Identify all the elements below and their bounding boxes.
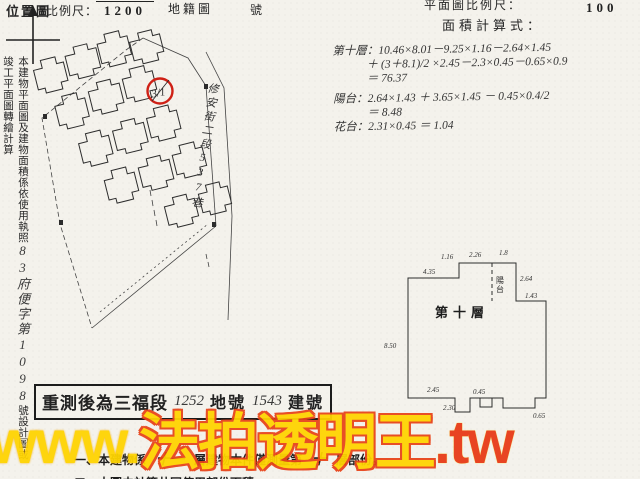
watermark-tld: .tw [434,408,513,476]
margin-note-permit-number: 83府便字第1098 [15,243,30,405]
scanned-building-survey-document: 位置圖 比例尺： 1200 地籍圖 號 平面圖比例尺： 100 面積計算式： 本… [0,0,640,479]
dimension-label: 4.35 [423,268,436,276]
lot-mark-text: 3/1 [149,86,166,100]
sheet-number-suffix: 號 [250,1,262,18]
scale-label: 比例尺： [46,2,98,19]
road-edge-diagonal [92,226,216,328]
plan-scale-label: 平面圖比例尺： [424,0,522,13]
parcel-boundary-left [42,38,143,328]
location-map-title: 位置圖 [6,1,51,20]
dimension-label: 1.8 [499,249,508,257]
road-centerline [100,224,208,312]
watermark-site-name: 法拍透明王 [139,408,434,476]
area-calculation-block: 第十層：10.46×8.01－9.25×1.16－2.64×1.45＋ (3＋8… [332,39,634,134]
dimension-label: 2.26 [469,251,482,259]
area-formula-label: 面積計算式： [442,15,544,34]
room-label: 第十層 [435,305,489,320]
scale-denominator: 1200 [96,1,154,19]
plan-scale-fraction: 100 [578,0,626,16]
site-plan-map: 3/1 [30,28,245,338]
plan-scale-denominator: 100 [578,0,626,16]
cadastral-map-label: 地籍圖 [168,0,213,17]
balcony-label: 陽台 [496,276,505,294]
survey-mark [43,114,47,119]
tiny-annotation-marks [206,254,209,267]
dimension-label: 8.50 [384,342,397,350]
watermark-text: www.法拍透明王.tw [0,392,513,479]
survey-mark [212,222,216,227]
tiny-annotation-marks [150,190,157,226]
margin-note-prefix: 本建物平面圖及建物面積係依使用執照 [17,56,28,243]
dimension-label: 1.43 [525,292,538,300]
scale-fraction: 1200 [96,1,154,19]
dimension-label: 0.65 [533,412,546,420]
dimension-label: 1.16 [441,253,454,261]
dimension-label: 2.64 [520,275,533,283]
survey-mark [59,220,63,225]
watermark-www: www. [0,408,139,476]
